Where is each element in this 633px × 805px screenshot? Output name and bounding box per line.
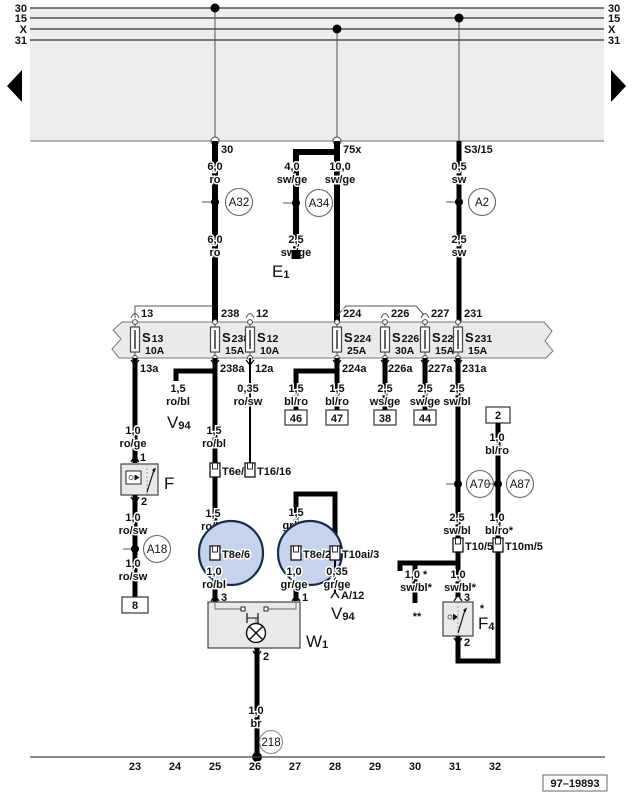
- component-ref-v94-2: V94: [331, 604, 355, 623]
- pin-label-a12: A/12: [341, 590, 364, 602]
- connector-dot: [454, 480, 462, 488]
- wire-color: sw/bl*: [444, 582, 477, 594]
- continuation-ref: **: [413, 611, 422, 623]
- wire-color: br: [251, 718, 263, 730]
- wire-color: sw/bl: [443, 396, 471, 408]
- connector-dot: [292, 199, 300, 207]
- wire-size: 2,5: [449, 512, 464, 524]
- fuse-amp: 15A: [468, 345, 488, 357]
- band-node: [335, 320, 340, 325]
- connector-dot: [211, 198, 219, 206]
- bus-junction-dot: [455, 14, 464, 23]
- bus-panel: 30 15 X 31 30 15 X 31 30 75x S3/15: [7, 3, 626, 156]
- terminal-t105: T10/5: [465, 541, 493, 553]
- pin-label: 2: [141, 496, 147, 508]
- track-number: 27: [289, 761, 301, 773]
- wire-color: bl/ro: [325, 396, 349, 408]
- terminal-label: 226: [391, 308, 409, 320]
- wire-color: ro/bl: [202, 438, 226, 450]
- pin-chevron: [454, 595, 462, 601]
- wire-color: ro/sw: [234, 396, 263, 408]
- connector-a70: A70: [470, 479, 490, 491]
- wire-color: ro: [210, 174, 221, 186]
- wire-color: sw/bl: [443, 525, 471, 537]
- wire-color: sw/ge: [410, 396, 441, 408]
- terminal-pin: [456, 538, 461, 544]
- wire-color: ws/ge: [369, 396, 401, 408]
- terminal-pin: [294, 546, 299, 552]
- wire-color: ro/bl: [166, 396, 190, 408]
- track-number: 29: [369, 761, 381, 773]
- fuse-name: S226: [392, 330, 419, 345]
- connector-a87: A87: [510, 479, 530, 491]
- bus-label-right-31: 31: [608, 35, 620, 47]
- wire-size: 1,0: [206, 566, 221, 578]
- wire-size: 1,0: [450, 569, 465, 581]
- terminal-pin: [496, 538, 501, 544]
- pin-chevron: [331, 592, 339, 598]
- terminal-pin: [248, 463, 253, 469]
- plug-arc: [421, 314, 429, 319]
- wire-end-stub: [292, 250, 301, 259]
- connector-dot: [455, 198, 463, 206]
- wire-color: bl/ro*: [485, 525, 514, 537]
- track-number: 24: [169, 761, 182, 773]
- wire-size: 1,0: [125, 425, 140, 437]
- wire-size: 1,0: [125, 512, 140, 524]
- terminal-label: 231: [464, 308, 482, 320]
- wire-size: 1,0: [489, 432, 504, 444]
- terminal-label: 227a: [428, 363, 453, 375]
- wire-size: 6,0: [207, 161, 222, 173]
- source-label: 2: [495, 410, 501, 422]
- ground-ref-218: 218: [261, 737, 280, 749]
- wire-size: 10,0: [329, 161, 350, 173]
- wire-size: 2,5: [417, 383, 432, 395]
- wire-color: gr/ge: [281, 579, 308, 591]
- component-f4: F4: [478, 614, 495, 633]
- wire-color: sw/bl*: [400, 582, 433, 594]
- wire-size: 1,0: [489, 512, 504, 524]
- wire-size: 1,5: [288, 383, 303, 395]
- terminal-label: 12: [256, 308, 268, 320]
- wire-color: sw: [452, 247, 467, 259]
- wire-size: 2,5: [449, 383, 464, 395]
- wire-size: 1,0: [125, 558, 140, 570]
- bus-junction-dot: [333, 25, 342, 34]
- terminal-t10ai3: T10ai/3: [342, 549, 379, 561]
- terminal-t8e6: T8e/6: [222, 549, 250, 561]
- connector-a32: A32: [229, 197, 249, 209]
- terminal-label: 13: [141, 308, 153, 320]
- terminal-pin: [213, 546, 218, 552]
- wire-size: 1,0 *: [405, 569, 428, 581]
- dest-label: 8: [132, 600, 138, 612]
- page-next-arrow[interactable]: [611, 70, 626, 102]
- dest-label: 44: [419, 413, 432, 425]
- band-node: [456, 320, 461, 325]
- pin-label: 1: [140, 452, 146, 464]
- wire-color: ro: [210, 247, 221, 259]
- wire-size: 0,35: [237, 383, 258, 395]
- lamp-internal-pad: [264, 607, 268, 611]
- plug-arc: [246, 314, 254, 319]
- terminal-pin: [213, 463, 218, 469]
- bus-panel-bg: [30, 8, 604, 141]
- fuse-name: S13: [142, 330, 164, 345]
- track-number: 30: [409, 761, 421, 773]
- wire-size: 1,0: [286, 566, 301, 578]
- track-number: 23: [129, 761, 141, 773]
- terminal-label: 224a: [342, 363, 367, 375]
- dest-label: 46: [290, 413, 302, 425]
- tap-label-s315: S3/15: [464, 144, 493, 156]
- dest-label: 38: [379, 413, 391, 425]
- page-prev-arrow[interactable]: [7, 70, 22, 102]
- connector-a2: A2: [475, 197, 489, 209]
- connector-dot: [494, 480, 502, 488]
- feed-75x: A34 4,0 sw/ge 10,0 sw/ge 2,5 sw/ge E1: [272, 141, 355, 322]
- terminal-label: 238: [221, 308, 239, 320]
- terminal-pin: [333, 546, 338, 552]
- wire-size: 1,0: [248, 705, 263, 717]
- wire-color: sw/ge: [325, 174, 356, 186]
- terminal-label: 227: [431, 308, 449, 320]
- column-224a: 1,5 bl/ro 46 1,5 bl/ro 47: [284, 358, 349, 425]
- wire-size: 0,5: [451, 161, 466, 173]
- wire-size: 1,5: [205, 508, 220, 520]
- terminal-label: 12a: [255, 363, 274, 375]
- wire-size: 0,35: [326, 566, 347, 578]
- fuse-name: S231: [465, 330, 492, 345]
- terminal-t8e2: T8e/2: [303, 549, 331, 561]
- fuse-amp: 15A: [435, 345, 455, 357]
- feed-s315: A2 0,5 sw 2,5 sw: [446, 141, 496, 322]
- wire-size: 2,5: [288, 234, 303, 246]
- wire-color: ro/sw: [119, 525, 148, 537]
- terminal-label: 231a: [462, 363, 487, 375]
- wire-size: 4,0: [284, 161, 299, 173]
- terminal-label: 224: [343, 308, 362, 320]
- pin-label: 2: [263, 651, 269, 663]
- wire-size: 2,5: [377, 383, 392, 395]
- band-node: [383, 320, 388, 325]
- terminal-t10m5: T10m/5: [505, 541, 543, 553]
- plug-arc: [381, 314, 389, 319]
- wire-color: sw: [452, 174, 467, 186]
- terminal-label: 226a: [388, 363, 413, 375]
- band-node: [423, 320, 428, 325]
- lamp-internal-pad: [241, 607, 245, 611]
- wire-size: 6,0: [207, 234, 222, 246]
- fuse-amp: 30A: [395, 345, 415, 357]
- track-number: 28: [329, 761, 341, 773]
- diagram-number: 97–19893: [551, 778, 600, 790]
- tap-label-30: 30: [221, 144, 233, 156]
- wiring-diagram-page: 30 15 X 31 30 15 X 31 30 75x S3/15 A32 6…: [0, 0, 633, 800]
- column-12a: 0,35 ro/sw T16/16: [234, 358, 292, 478]
- wire-color: sw/ge: [277, 174, 308, 186]
- bus-junction-dot: [211, 4, 220, 13]
- connector-dot: [131, 545, 139, 553]
- wire-color: bl/ro: [485, 445, 509, 457]
- terminal-t1616: T16/16: [257, 466, 291, 478]
- fuse-amp: 10A: [260, 345, 280, 357]
- fuse-amp: 25A: [347, 345, 367, 357]
- track-number: 32: [489, 761, 501, 773]
- wire-size: 1,5: [288, 507, 303, 519]
- component-ref-v94: V94: [167, 413, 191, 432]
- current-flow-diagram: 30 15 X 31 30 15 X 31 30 75x S3/15 A32 6…: [0, 0, 633, 800]
- wire-size: 1,5: [170, 383, 185, 395]
- wire-color: ro/ge: [120, 438, 147, 450]
- terminal-label: 13a: [140, 363, 159, 375]
- pin-label: 2: [464, 637, 470, 649]
- wire-robl-spur: [176, 371, 215, 381]
- fuse-amp: 15A: [225, 345, 245, 357]
- band-node: [213, 320, 218, 325]
- wire-size: 1,5: [329, 383, 344, 395]
- column-2: 2 1,0 bl/ro A87 1,0 bl/ro* T10m/5: [485, 407, 543, 553]
- bus-label-left-31: 31: [15, 35, 27, 47]
- fuse-name: S12: [257, 330, 279, 345]
- component-f: F: [164, 474, 174, 493]
- band-node: [248, 320, 253, 325]
- wire-color: ro/sw: [119, 571, 148, 583]
- component-w1: W1: [306, 632, 328, 651]
- band-node: [133, 320, 138, 325]
- track-rail: 23 24 25 26 27 28 29 30 31 32 97–19893: [30, 757, 607, 791]
- track-number: 25: [209, 761, 221, 773]
- wire-color: ro/bl: [202, 579, 226, 591]
- fuse-name: S224: [344, 330, 371, 345]
- lamp-circuit: 1,5 gr/ge T8e/6 1,0 ro/bl 3 T8e/2 T10ai/…: [199, 494, 379, 762]
- track-number: 26: [249, 761, 261, 773]
- tap-label-75x: 75x: [343, 144, 362, 156]
- component-ref-e1: E1: [272, 262, 289, 281]
- wire-color: bl/ro: [284, 396, 308, 408]
- wire-size: 1,5: [206, 425, 221, 437]
- connector-a18: A18: [147, 544, 167, 556]
- wire-size: 2,5: [451, 234, 466, 246]
- fuse-amp: 10A: [145, 345, 165, 357]
- track-number: 31: [449, 761, 461, 773]
- feed-30: A32 6,0 ro 6,0 ro: [202, 141, 253, 322]
- connector-a34: A34: [309, 198, 330, 210]
- dest-label: 47: [331, 413, 343, 425]
- pin-label: 1: [302, 592, 308, 604]
- terminal-label: 238a: [220, 363, 245, 375]
